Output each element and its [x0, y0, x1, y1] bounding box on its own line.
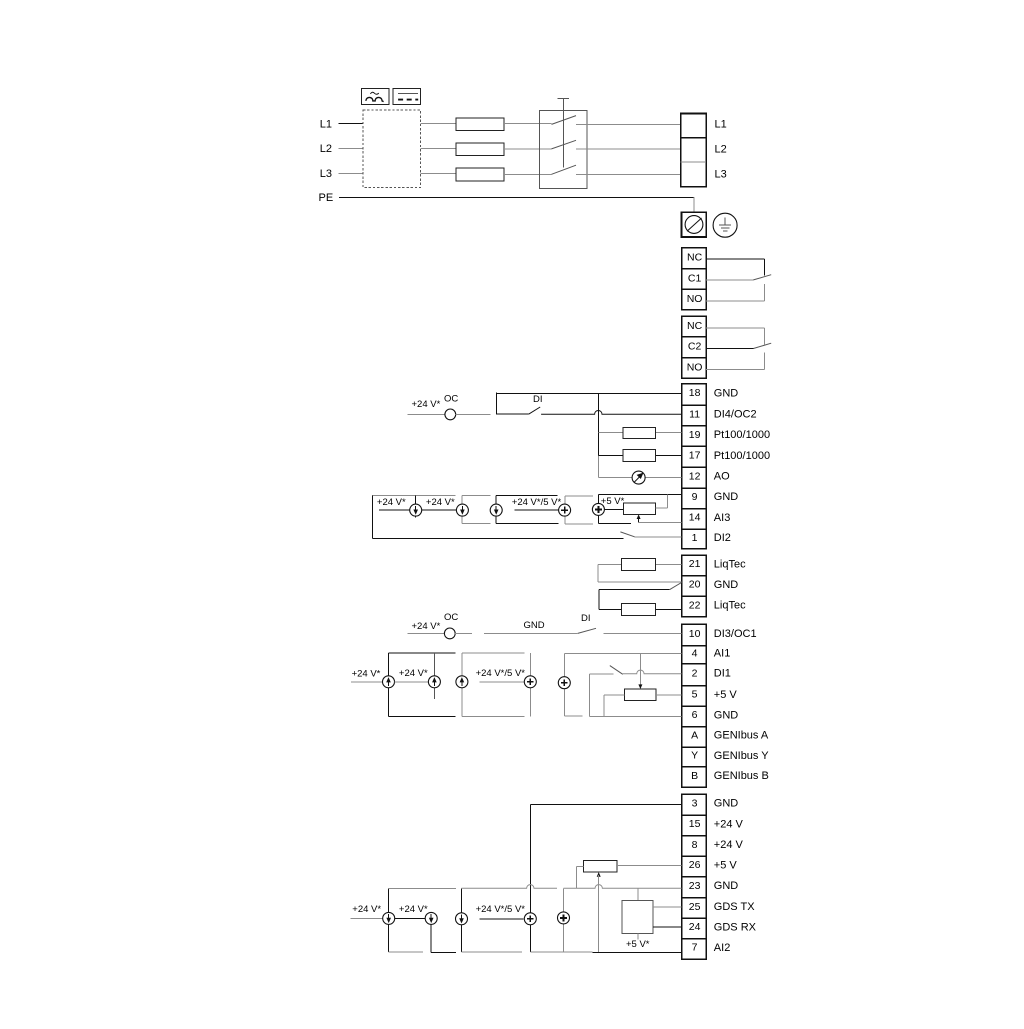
svg-text:GND: GND: [714, 387, 739, 399]
svg-text:AI3: AI3: [714, 512, 731, 524]
svg-text:+5 V: +5 V: [714, 859, 738, 871]
svg-text:11: 11: [689, 408, 700, 420]
svg-text:4: 4: [692, 647, 698, 659]
svg-text:+5 V*: +5 V*: [601, 496, 625, 507]
svg-text:25: 25: [689, 901, 701, 913]
svg-text:LiqTec: LiqTec: [714, 599, 746, 611]
svg-text:Y: Y: [691, 750, 698, 762]
svg-text:GENIbus A: GENIbus A: [714, 730, 769, 742]
svg-text:L1: L1: [715, 119, 727, 131]
svg-text:GND: GND: [714, 709, 739, 721]
svg-text:DI3/OC1: DI3/OC1: [714, 628, 757, 640]
svg-text:OC: OC: [444, 394, 458, 405]
svg-text:A: A: [691, 730, 698, 742]
svg-text:GND: GND: [714, 880, 739, 892]
svg-text:17: 17: [689, 450, 701, 462]
svg-text:DI: DI: [581, 613, 591, 624]
svg-text:21: 21: [689, 558, 701, 570]
svg-text:24: 24: [689, 921, 701, 933]
svg-text:DI2: DI2: [714, 532, 731, 544]
svg-text:C1: C1: [688, 272, 702, 284]
svg-text:GDS TX: GDS TX: [714, 901, 755, 913]
svg-text:GDS RX: GDS RX: [714, 921, 757, 933]
svg-text:+24 V*: +24 V*: [399, 904, 428, 915]
svg-text:C2: C2: [688, 341, 702, 353]
svg-text:PE: PE: [319, 192, 334, 204]
svg-text:AI2: AI2: [714, 942, 731, 954]
svg-text:12: 12: [689, 470, 701, 482]
svg-text:B: B: [691, 770, 698, 782]
svg-text:19: 19: [689, 429, 701, 441]
svg-text:GND: GND: [714, 797, 739, 809]
svg-text:23: 23: [689, 880, 701, 892]
svg-text:22: 22: [689, 599, 701, 611]
svg-text:15: 15: [689, 818, 701, 830]
svg-text:8: 8: [692, 839, 698, 851]
svg-text:+24 V*: +24 V*: [352, 904, 381, 915]
svg-text:9: 9: [692, 491, 698, 503]
svg-text:+24 V*: +24 V*: [412, 399, 441, 410]
svg-text:Pt100/1000: Pt100/1000: [714, 450, 770, 462]
svg-text:20: 20: [689, 579, 701, 591]
svg-text:GND: GND: [524, 620, 545, 631]
svg-text:NO: NO: [687, 361, 703, 373]
svg-text:10: 10: [689, 628, 701, 640]
svg-text:+24 V*/5 V*: +24 V*/5 V*: [476, 668, 526, 679]
svg-text:GENIbus B: GENIbus B: [714, 770, 769, 782]
svg-text:DI1: DI1: [714, 668, 731, 680]
svg-text:GND: GND: [714, 579, 739, 591]
svg-text:14: 14: [689, 512, 701, 524]
svg-text:26: 26: [689, 859, 701, 871]
svg-text:6: 6: [692, 709, 698, 721]
svg-text:5: 5: [692, 689, 698, 701]
svg-text:+24 V*: +24 V*: [412, 621, 441, 632]
svg-text:LiqTec: LiqTec: [714, 558, 746, 570]
svg-text:+5 V*: +5 V*: [626, 939, 650, 950]
svg-text:AO: AO: [714, 471, 730, 483]
svg-text:L3: L3: [715, 169, 727, 181]
svg-text:1: 1: [692, 532, 698, 544]
svg-text:L1: L1: [320, 119, 332, 131]
svg-text:+24 V*: +24 V*: [399, 668, 428, 679]
svg-text:GENIbus Y: GENIbus Y: [714, 750, 769, 762]
svg-text:Pt100/1000: Pt100/1000: [714, 429, 770, 441]
svg-text:+24 V*/5 V*: +24 V*/5 V*: [476, 904, 526, 915]
svg-text:NC: NC: [687, 320, 703, 332]
svg-text:+24 V*: +24 V*: [377, 497, 406, 508]
svg-text:NO: NO: [687, 293, 703, 305]
svg-text:GND: GND: [714, 491, 739, 503]
svg-text:L2: L2: [715, 143, 727, 155]
svg-text:18: 18: [689, 387, 701, 399]
svg-text:+24 V: +24 V: [714, 839, 744, 851]
svg-text:DI: DI: [533, 394, 543, 405]
svg-text:2: 2: [692, 667, 698, 679]
svg-text:+24 V: +24 V: [714, 818, 744, 830]
svg-text:+24 V*/5 V*: +24 V*/5 V*: [512, 497, 562, 508]
svg-text:+24 V*: +24 V*: [352, 668, 381, 679]
svg-text:+24 V*: +24 V*: [426, 497, 455, 508]
svg-text:DI4/OC2: DI4/OC2: [714, 409, 757, 421]
svg-text:NC: NC: [687, 252, 703, 264]
svg-text:L3: L3: [320, 168, 332, 180]
svg-text:7: 7: [692, 942, 698, 954]
svg-text:+5 V: +5 V: [714, 689, 738, 701]
svg-text:AI1: AI1: [714, 648, 731, 660]
svg-text:OC: OC: [444, 612, 458, 623]
svg-text:3: 3: [692, 797, 698, 809]
svg-text:L2: L2: [320, 143, 332, 155]
